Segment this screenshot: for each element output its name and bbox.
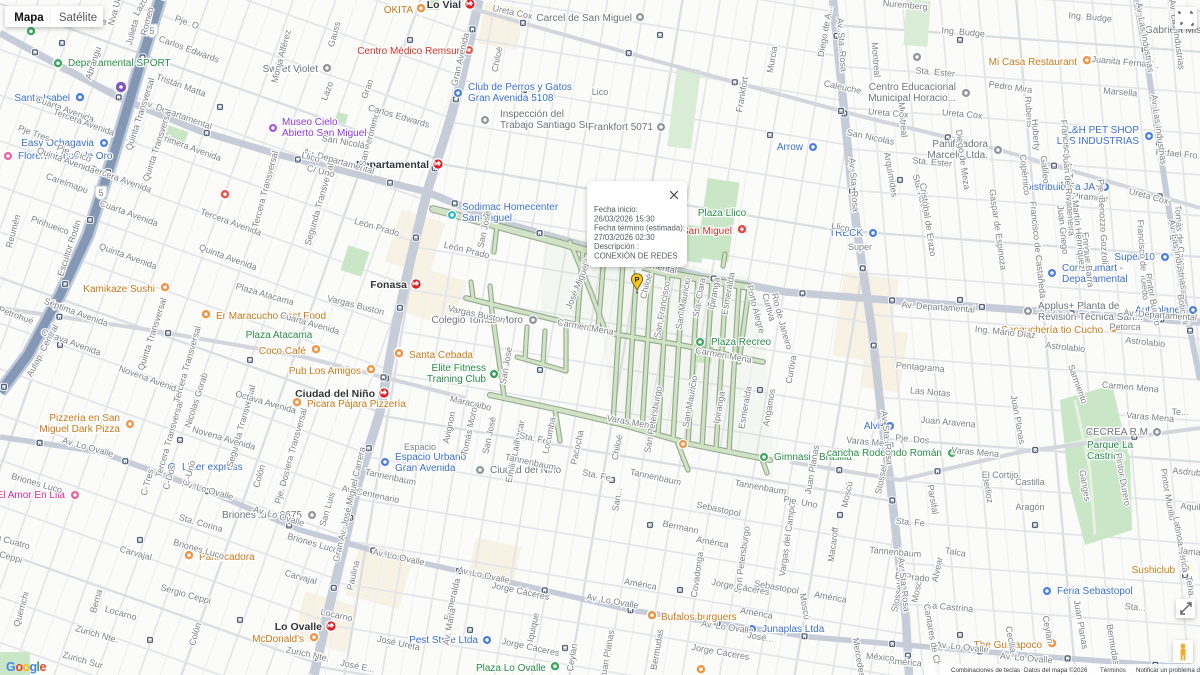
svg-text:26/03/2026 15:30: 26/03/2026 15:30 xyxy=(594,214,655,223)
svg-text:Frankfort 5071: Frankfort 5071 xyxy=(588,122,653,133)
svg-text:Sushiclub: Sushiclub xyxy=(1132,565,1176,576)
svg-text:Centro EducacionalMunicipal Ho: Centro EducacionalMunicipal Horacio... xyxy=(868,82,956,104)
svg-text:Petorca: Petorca xyxy=(1109,322,1140,332)
svg-text:Arrow: Arrow xyxy=(777,142,804,153)
svg-text:Lo Ovalle: Lo Ovalle xyxy=(275,621,322,633)
svg-text:Alvi: Alvi xyxy=(864,421,880,432)
svg-text:Picara Pájara Pizzería: Picara Pájara Pizzería xyxy=(307,399,406,410)
svg-text:Fecha inicio:: Fecha inicio: xyxy=(594,205,638,214)
svg-text:G: G xyxy=(6,660,16,674)
svg-text:Carcel de San Miguel: Carcel de San Miguel xyxy=(536,13,632,24)
svg-text:El Cortijo: El Cortijo xyxy=(982,470,1019,480)
svg-text:Fonasa: Fonasa xyxy=(370,279,407,291)
svg-text:Combinaciones de teclas: Combinaciones de teclas xyxy=(951,667,1020,674)
svg-text:Mi Casa Restaurant: Mi Casa Restaurant xyxy=(989,57,1078,68)
svg-text:Super 10: Super 10 xyxy=(1114,252,1155,263)
svg-text:Notificar un problema de Maps: Notificar un problema de Maps xyxy=(1136,667,1200,674)
svg-text:Datos del mapa ©2026: Datos del mapa ©2026 xyxy=(1024,667,1088,674)
svg-text:Términos: Términos xyxy=(1100,667,1126,674)
svg-text:Castilla: Castilla xyxy=(1015,477,1045,487)
svg-text:Coco Café: Coco Café xyxy=(259,346,307,357)
svg-text:Plaza Llico: Plaza Llico xyxy=(698,208,747,219)
svg-text:OKITA: OKITA xyxy=(384,5,414,16)
svg-text:CECREA R.M: CECREA R.M xyxy=(1086,427,1148,438)
svg-text:Pizzería en SanMiguel Dark Piz: Pizzería en SanMiguel Dark Pizza xyxy=(39,413,120,435)
svg-text:5: 5 xyxy=(98,188,103,198)
svg-text:Lo Vial: Lo Vial xyxy=(427,0,461,11)
svg-text:27/03/2026 02:30: 27/03/2026 02:30 xyxy=(594,233,655,242)
svg-text:Aragón: Aragón xyxy=(1015,502,1044,512)
svg-text:Kamikaze Sushi: Kamikaze Sushi xyxy=(83,284,155,295)
svg-text:Plaza Recreo: Plaza Recreo xyxy=(711,337,771,348)
svg-text:e: e xyxy=(40,660,47,674)
svg-text:Elite FitnessTraining Club: Elite FitnessTraining Club xyxy=(427,363,487,385)
svg-text:McDonald's: McDonald's xyxy=(252,634,304,645)
svg-text:Centro Médico Remsur: Centro Médico Remsur xyxy=(357,46,460,57)
svg-text:Departamental SPORT: Departamental SPORT xyxy=(68,58,171,69)
svg-text:Feria Sebastopol: Feria Sebastopol xyxy=(1057,586,1133,597)
svg-text:Descripción :: Descripción : xyxy=(594,242,639,251)
svg-text:Super: Super xyxy=(848,242,872,252)
svg-text:CONEXIÓN DE REDES: CONEXIÓN DE REDES xyxy=(594,252,678,261)
svg-text:Sta...: Sta... xyxy=(1124,601,1146,613)
svg-text:Pub Los Amigos: Pub Los Amigos xyxy=(289,366,361,377)
svg-text:P: P xyxy=(634,275,639,284)
svg-text:Santa Cebada: Santa Cebada xyxy=(409,350,473,361)
svg-text:Espacio: Espacio xyxy=(404,442,436,452)
svg-text:Lico: Lico xyxy=(592,87,609,97)
svg-text:Plaza Lo Ovalle: Plaza Lo Ovalle xyxy=(476,663,546,674)
svg-text:Plaza Atacama: Plaza Atacama xyxy=(246,330,313,341)
svg-text:Mapa: Mapa xyxy=(14,12,44,24)
svg-text:Fecha término (estimada):: Fecha término (estimada): xyxy=(594,224,685,233)
svg-text:Satélite: Satélite xyxy=(59,12,97,24)
